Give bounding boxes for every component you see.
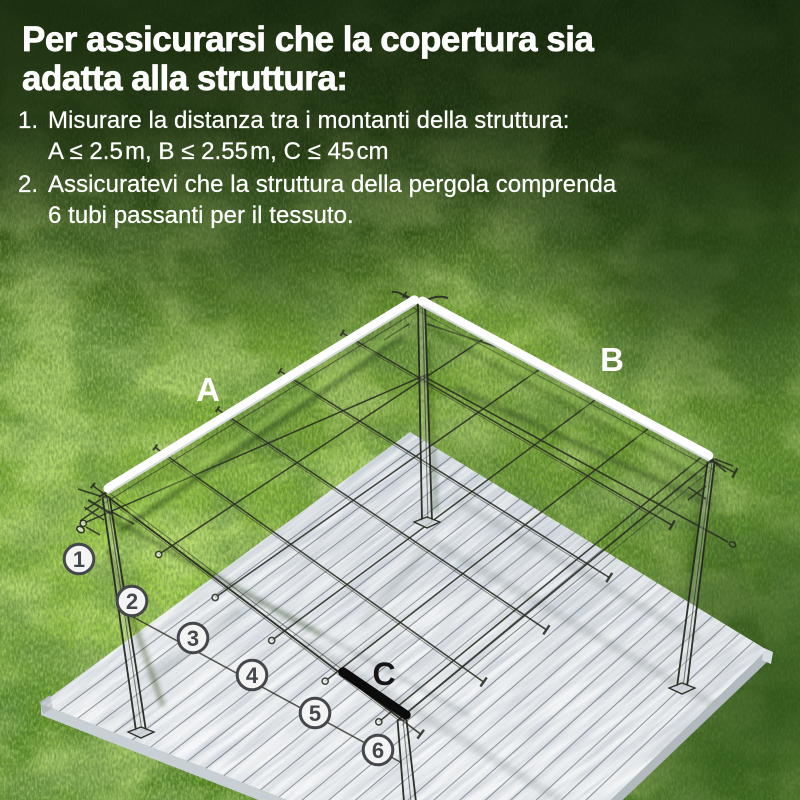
- svg-text:B: B: [600, 341, 624, 378]
- svg-text:6: 6: [372, 738, 384, 763]
- svg-text:2: 2: [126, 589, 138, 614]
- svg-text:5: 5: [309, 701, 321, 726]
- svg-text:A: A: [196, 371, 220, 408]
- svg-text:C: C: [372, 656, 395, 692]
- svg-text:4: 4: [246, 663, 259, 688]
- svg-text:1: 1: [73, 547, 85, 572]
- svg-text:3: 3: [187, 626, 199, 651]
